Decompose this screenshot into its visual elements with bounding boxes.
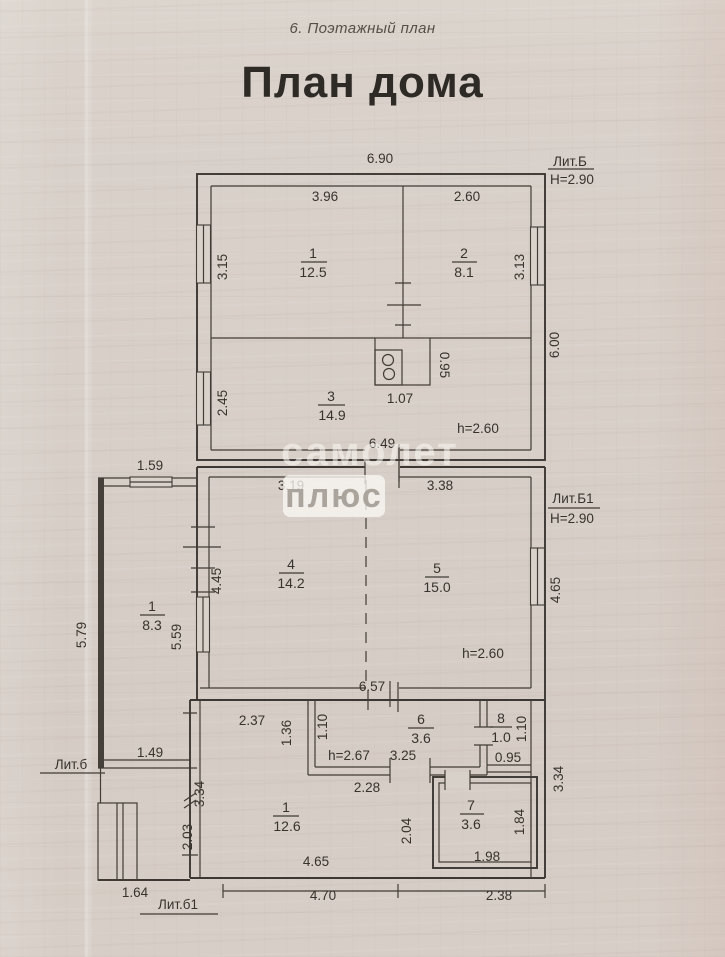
- litera-B1: Лит.Б1: [552, 491, 593, 506]
- dim-184: 1.84: [512, 808, 527, 835]
- litera-B-height: Н=2.90: [550, 172, 594, 187]
- annex-room-number: 1: [148, 598, 156, 614]
- bottom-room1-number: 1: [282, 799, 290, 815]
- watermark-plus-badge: плюс: [283, 475, 385, 517]
- dim-470: 4.70: [310, 888, 336, 903]
- room2-number: 2: [460, 245, 468, 261]
- litera-B1-height: Н=2.90: [550, 511, 594, 526]
- room1-number: 1: [309, 245, 317, 261]
- dim-room1-depth: 3.15: [215, 254, 230, 280]
- annex-room-area: 8.3: [142, 617, 162, 633]
- dim-228: 2.28: [354, 780, 380, 795]
- room4-area: 14.2: [277, 575, 304, 591]
- dim-top-width: 6.90: [367, 151, 393, 166]
- chimney-icon: [387, 283, 421, 325]
- dim-right-side: 6.00: [547, 332, 562, 358]
- dim-203: 2.03: [180, 824, 195, 850]
- dim-room3-depth: 2.45: [215, 390, 230, 416]
- dim-238: 2.38: [486, 888, 512, 903]
- top-block-labels: 6.90 Лит.Б Н=2.90 3.96 2.60 3.15 3.13 1 …: [215, 151, 594, 451]
- dim-mid-bottom: 6.57: [359, 679, 385, 694]
- dim-annex-left: 5.79: [74, 622, 89, 648]
- room3-number: 3: [327, 388, 335, 404]
- dim-stove-width: 1.07: [387, 391, 413, 406]
- dim-110-right: 1.10: [514, 716, 529, 742]
- annex-labels: 1.59 5.79 1 8.3 5.59 1.49 Лит.б: [55, 458, 184, 772]
- stove-icon: [375, 338, 430, 385]
- dim-325: 3.25: [390, 748, 416, 763]
- porch-steps: [98, 803, 137, 880]
- room7-area: 3.6: [461, 816, 481, 832]
- ceiling-height-room6: h=2.67: [328, 748, 370, 763]
- dim-room5-depth: 4.65: [548, 577, 563, 603]
- scanned-page: 6. Поэтажный план План дома: [0, 0, 725, 957]
- room3-area: 14.9: [318, 407, 345, 423]
- dim-334-left: 3.34: [192, 780, 207, 807]
- dim-136: 1.36: [279, 720, 294, 746]
- dim-204: 2.04: [399, 817, 414, 844]
- dim-stove-depth: 0.95: [437, 352, 452, 378]
- room8-number: 8: [497, 710, 505, 726]
- ceiling-height-room5: h=2.60: [462, 646, 504, 661]
- dim-room2-width: 2.60: [454, 189, 480, 204]
- room6-number: 6: [417, 711, 425, 727]
- room2-area: 8.1: [454, 264, 474, 280]
- dim-room2-depth: 3.13: [512, 254, 527, 280]
- dim-237: 2.37: [239, 713, 265, 728]
- room5-area: 15.0: [423, 579, 450, 595]
- dim-198: 1.98: [474, 849, 500, 864]
- dim-room4-depth: 4.45: [209, 568, 224, 594]
- litera-b-small: Лит.б: [55, 757, 88, 772]
- dim-room1-width: 3.96: [312, 189, 338, 204]
- watermark-plus-text: плюс: [285, 477, 383, 516]
- dim-annex-top: 1.59: [137, 458, 163, 473]
- bottom-room1-area: 12.6: [273, 818, 300, 834]
- room8-area: 1.0: [491, 729, 511, 745]
- dim-095: 0.95: [495, 750, 521, 765]
- litera-B: Лит.Б: [553, 154, 587, 169]
- dim-334-right: 3.34: [551, 765, 566, 792]
- ceiling-height-room3: h=2.60: [457, 421, 499, 436]
- dim-465-bottom: 4.65: [303, 854, 329, 869]
- dim-110-left: 1.10: [315, 714, 330, 740]
- dim-annex-bottom: 1.49: [137, 745, 163, 760]
- room7-number: 7: [467, 797, 475, 813]
- litera-b1-small: Лит.б1: [158, 897, 198, 912]
- bottom-block-labels: 2.37 1.36 1.10 6 3.6 h=2.67 3.25 8 1.0 1…: [122, 710, 566, 912]
- dim-164: 1.64: [122, 885, 149, 900]
- room6-area: 3.6: [411, 730, 431, 746]
- dim-room5-width: 3.38: [427, 478, 453, 493]
- middle-block-walls: [183, 446, 600, 707]
- room4-number: 4: [287, 556, 295, 572]
- watermark-samolet: самолет: [281, 430, 459, 475]
- room1-area: 12.5: [299, 264, 326, 280]
- dim-annex-right: 5.59: [169, 624, 184, 650]
- room5-number: 5: [433, 560, 441, 576]
